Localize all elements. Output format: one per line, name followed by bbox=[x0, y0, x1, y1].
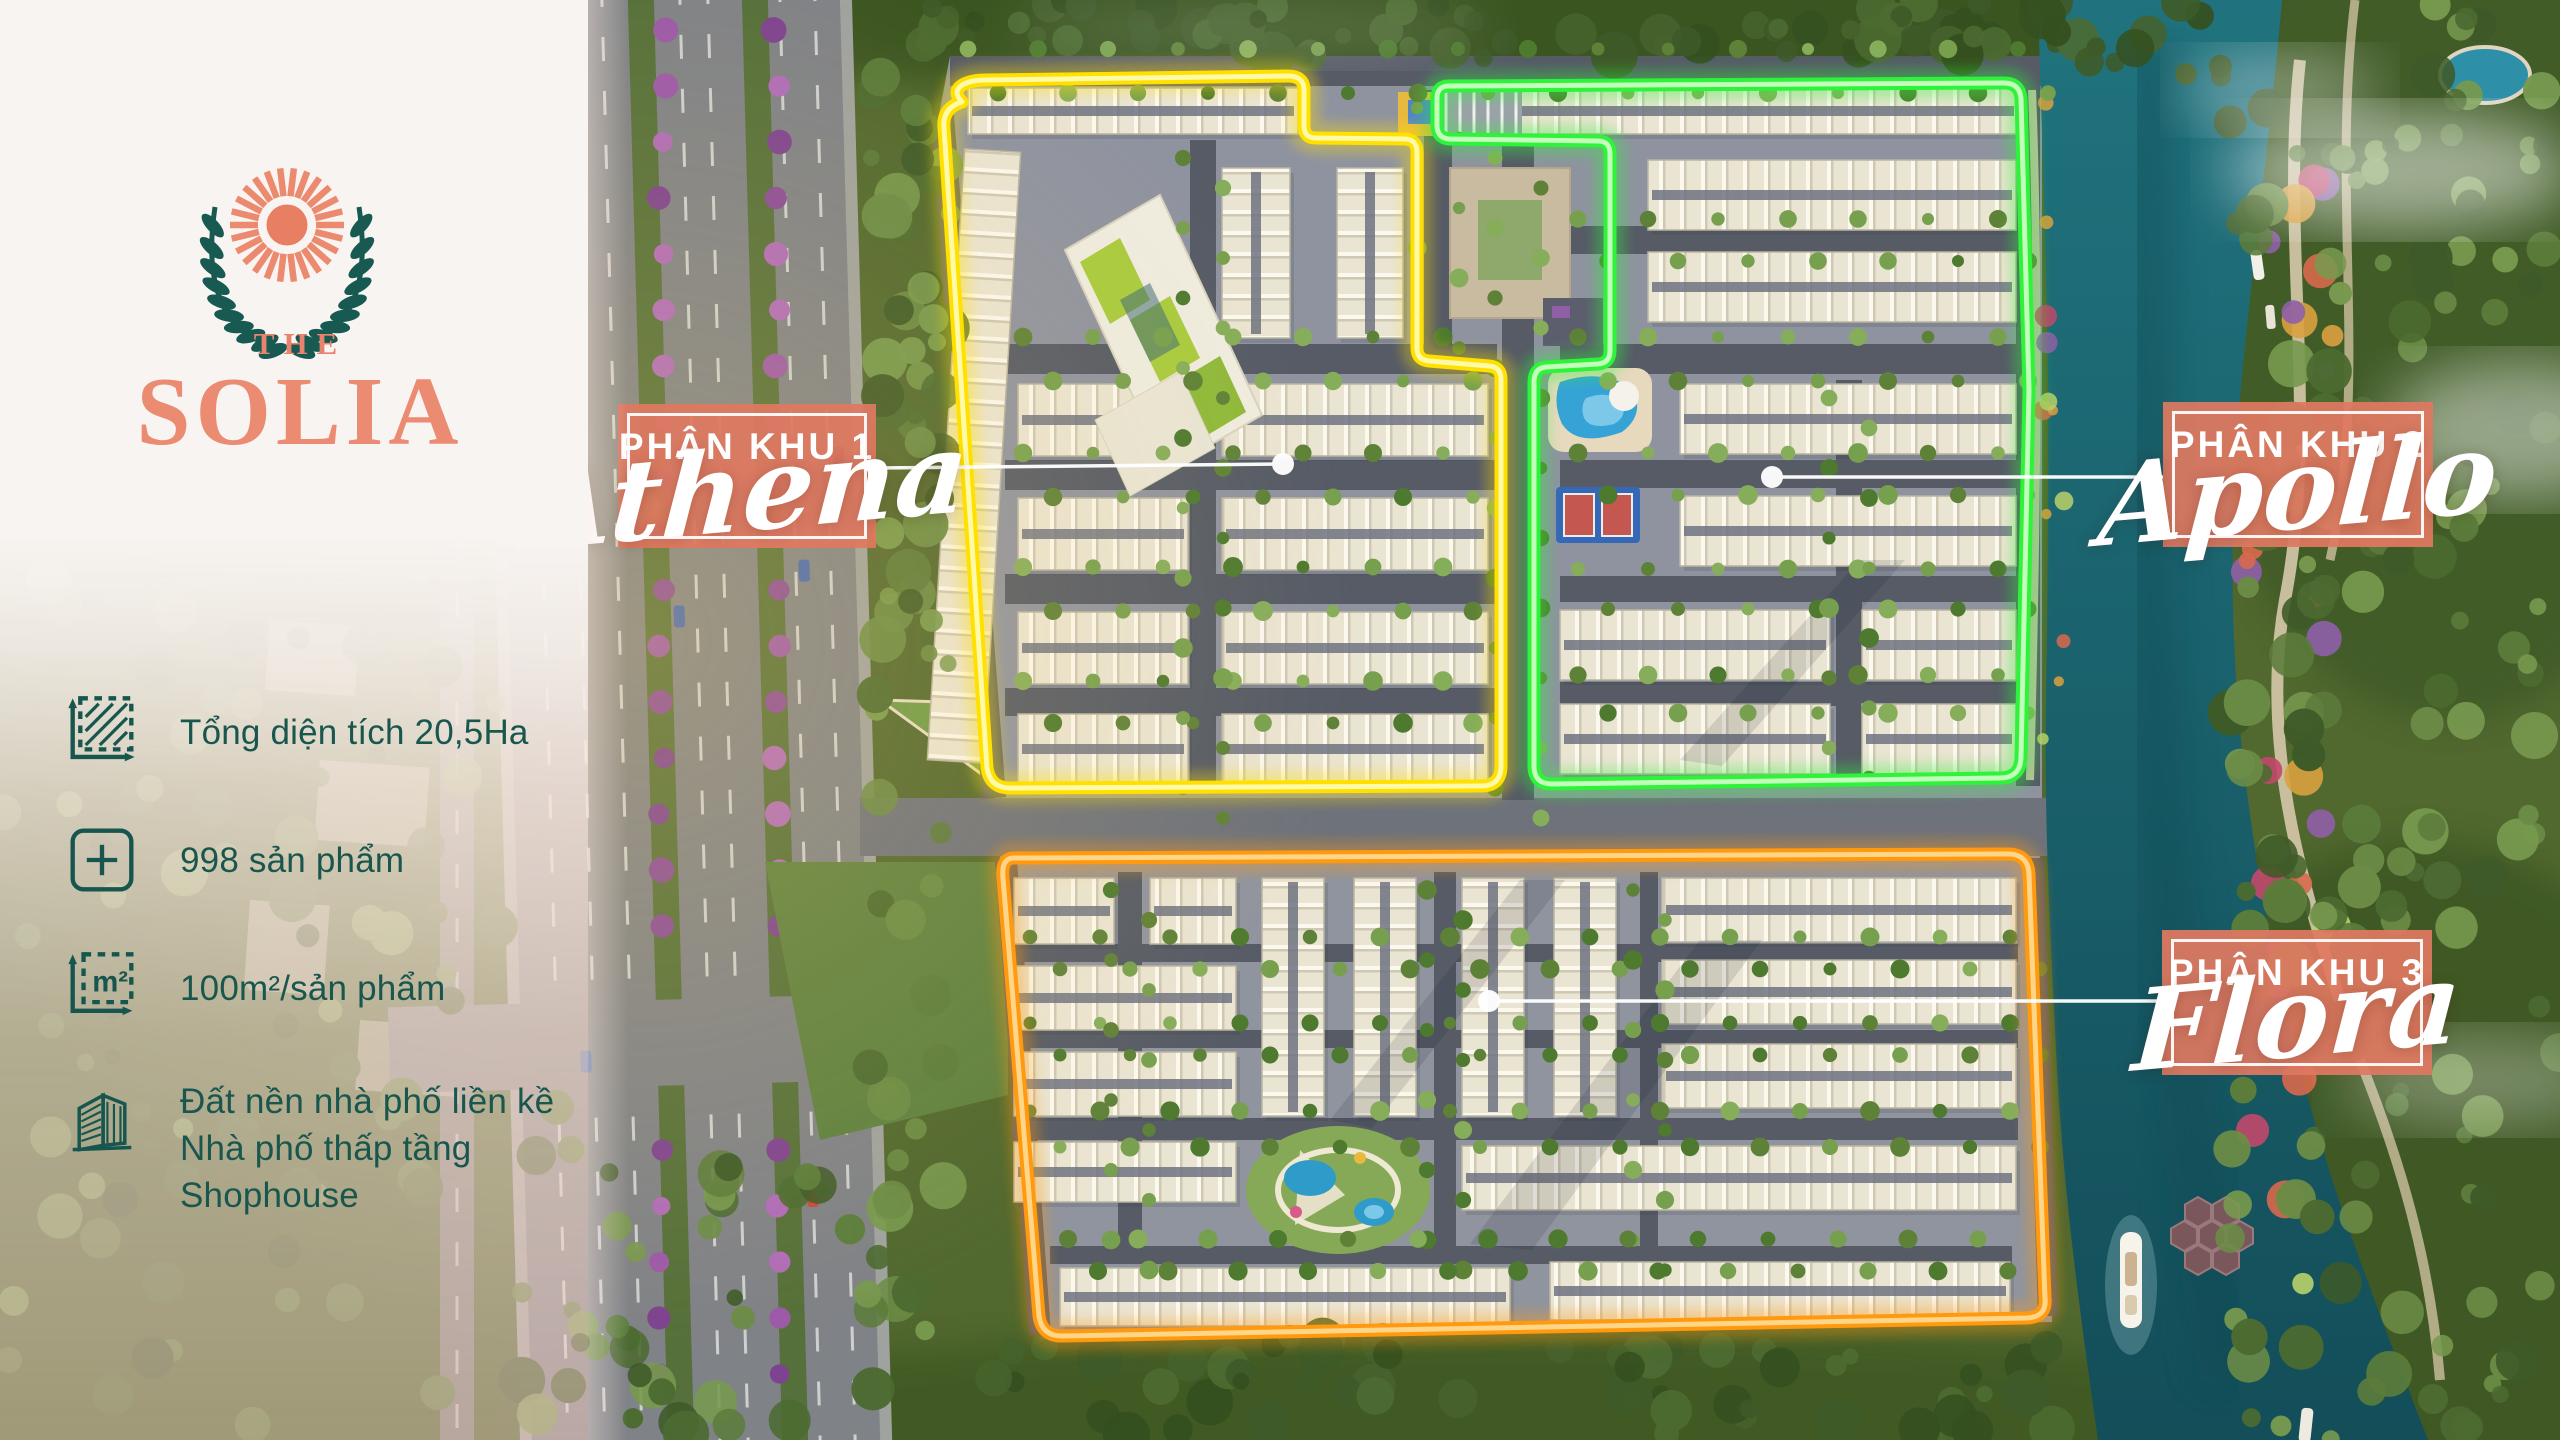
stat-area-per-product: m² 100m²/sản phẩm bbox=[64, 950, 569, 1026]
zone-badge-apollo: PHÂN KHU 2 Apollo bbox=[2163, 402, 2433, 547]
stat-line: Đất nền nhà phố liền kề bbox=[180, 1078, 554, 1125]
yacht-icon bbox=[2105, 1215, 2157, 1355]
zone-badge-label: PHÂN KHU 1 bbox=[618, 426, 876, 468]
building-icon bbox=[64, 1078, 140, 1154]
zone-badge-name: Flora bbox=[2129, 941, 2465, 1094]
info-panel: THE SOLIA Tổng diện tích 20,5Ha 998 sản … bbox=[0, 0, 588, 1440]
stat-line: Shophouse bbox=[180, 1172, 554, 1219]
stat-products: 998 sản phẩm bbox=[64, 822, 569, 898]
plus-icon bbox=[64, 822, 140, 898]
zone-badge-label: PHÂN KHU 2 bbox=[2163, 424, 2433, 466]
project-stats: Tổng diện tích 20,5Ha 998 sản phẩm m² 10… bbox=[64, 694, 569, 1271]
logo-sun-icon bbox=[230, 168, 344, 281]
area-icon bbox=[64, 694, 140, 770]
stat-product-types: Đất nền nhà phố liền kề Nhà phố thấp tần… bbox=[64, 1078, 569, 1219]
zone-badge-flora: PHÂN KHU 3 Flora bbox=[2162, 930, 2432, 1075]
svg-text:m²: m² bbox=[92, 965, 128, 998]
brand-name-main: SOLIA bbox=[0, 356, 600, 467]
zone-badge-athena: PHÂN KHU 1 Athena bbox=[618, 404, 876, 548]
m2-icon: m² bbox=[64, 950, 140, 1026]
zone-badge-label: PHÂN KHU 3 bbox=[2162, 952, 2432, 994]
stat-total-area: Tổng diện tích 20,5Ha bbox=[64, 694, 569, 770]
the-solia-logo bbox=[137, 95, 437, 365]
stat-line: Nhà phố thấp tầng bbox=[180, 1125, 554, 1172]
